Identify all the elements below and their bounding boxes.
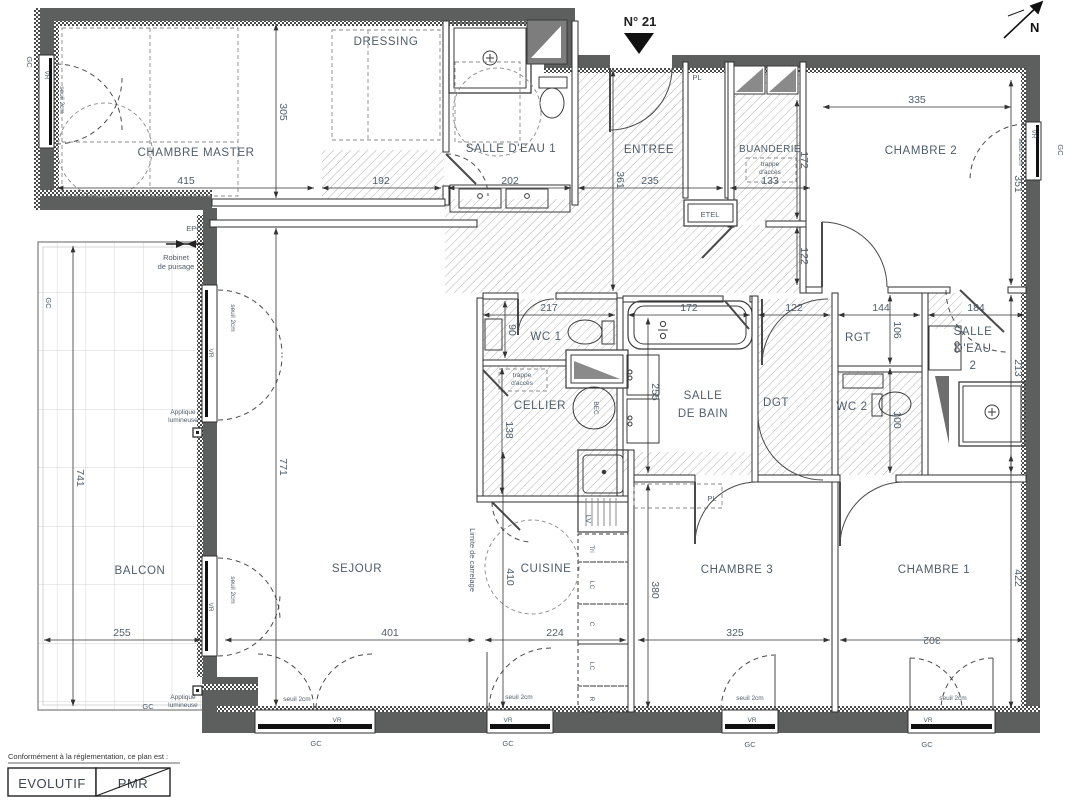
lc-label-2: LC [588,662,595,671]
gc-balcony-left: GC [44,297,53,309]
label-chambre-master: CHAMBRE MASTER [137,147,254,159]
dim-se2-height: 213 [1012,359,1024,377]
r-label: R [588,697,595,702]
dim-chambre3-width: 325 [726,627,744,639]
label-buanderie-note1: trappe [761,161,780,168]
gc-right: GC [1056,144,1065,156]
tri-label: Tri [588,545,595,552]
pl-label-entree: PL [692,73,701,82]
applique2-line1: Applique [170,694,196,701]
dim-sejour-height: 771 [277,458,289,476]
window-chambre1 [908,710,995,733]
hatched-floors [322,68,962,496]
vr-window-chambre1: VR [923,717,932,724]
robinet-line1: Robinet [163,253,190,262]
label-wc-2: WC 2 [836,401,867,413]
legend-evolutif-label: EVOLUTIF [18,776,86,791]
label-rgt: RGT [845,332,871,344]
label-cuisine: CUISINE [521,563,572,575]
floor-plan-drawing: 415 192 202 235 133 335 217 172 122 144 … [0,0,1074,800]
label-balcon: BALCON [115,565,166,577]
dim-entree-width: 235 [641,175,659,187]
applique2-line2: lumineuse [168,702,198,709]
dim-rgt-height: 106 [891,321,903,339]
label-salle-eau-1: SALLE D'EAU 1 [466,143,557,155]
label-chambre-2: CHAMBRE 2 [885,145,958,157]
dim-se2-width: 184 [967,302,985,314]
seuil-cuisine: seuil 2cm [505,694,532,701]
label-wc-1: WC 1 [530,331,561,343]
dim-master-width: 415 [177,175,195,187]
label-se2-2: D'EAU [954,343,991,355]
dim-cuisine-width: 224 [546,627,564,639]
label-dressing: DRESSING [354,36,419,48]
vr-master-window: VR [43,70,50,79]
window-master [39,55,54,148]
seuil-chambre2: seuil 2cm [1017,138,1024,165]
bec-label: BEC [592,401,599,415]
vr-window-chambre3: VR [747,717,756,724]
unit-number-label: N° 21 [624,14,657,29]
vr-balcony-door2: VR [207,602,214,611]
gc-balcony-bottom: GC [142,702,154,711]
seuil-balcony1: seuil 2cm [229,304,236,331]
label-cellier-note1: trappe [513,372,532,379]
vr-window-sejour: VR [332,717,341,724]
unit-arrow-icon [624,33,654,54]
gc-window-chambre1: GC [921,740,933,749]
dim-bath-width: 172 [680,302,698,314]
label-se2-1: SALLE [954,326,993,338]
dim-sdb-height: 255 [649,383,661,401]
gc-window-chambre3: GC [744,740,756,749]
limite-carrelage-label: Limite de carrelage [468,528,477,592]
gc-window-cuisine: GC [502,739,514,748]
applique1-line1: Applique [170,409,196,416]
dim-chambre3-height: 380 [649,581,661,599]
label-cellier-note2: d'accès [511,380,534,387]
legend: Conformément à la réglementation, ce pla… [8,752,180,796]
label-sdb-2: DE BAIN [678,408,728,420]
wall-light-icon-1 [193,428,202,437]
window-sejour [255,710,375,733]
seuil-chambre1: seuil 2cm [939,695,966,702]
dim-master-height: 305 [277,103,289,121]
vr-chambre2-window: VR [1030,129,1037,138]
kitchen-appliance-slots [578,534,628,712]
pl-label-chambre3: PL [707,494,716,503]
unit-marker: N° 21 [624,14,657,54]
label-buanderie: BUANDERIE [739,144,801,155]
toilet-1 [539,77,567,118]
label-cellier: CELLIER [514,400,566,412]
shower-2 [959,382,1025,446]
dim-dressing-width: 192 [372,175,390,187]
dim-balcon-height: 741 [74,469,86,487]
label-sejour: SEJOUR [332,563,382,575]
dim-chambre1-height: 422 [1012,569,1024,587]
lc-label-1: LC [588,581,595,590]
label-buanderie-note2: d'accès [759,169,782,176]
seuil-balcony2: seuil 2cm [229,576,236,603]
label-chambre-3: CHAMBRE 3 [701,564,774,576]
gc-top-left: GC [25,56,34,68]
vr-window-cuisine: VR [503,717,512,724]
label-sdb-1: SALLE [684,390,723,402]
lv-label: LV [584,515,593,524]
dim-wc1-height: 90 [506,324,518,336]
dim-buanderie-width: 133 [761,175,779,187]
dim-cellier-height: 138 [503,421,515,439]
dim-balcon-width: 255 [113,627,131,639]
dim-dgt-width: 122 [785,302,803,314]
dim-sejour-width: 401 [381,627,399,639]
north-arrow-icon: N [1004,2,1042,38]
dim-sdb1-width: 202 [501,175,519,187]
dim-chambre2-width: 335 [908,94,926,106]
seuil-chambre3: seuil 2cm [736,695,763,702]
label-chambre-1: CHAMBRE 1 [898,564,971,576]
robinet-line2: de puisage [158,262,195,271]
dim-cuisine-height: 410 [504,568,516,586]
shower-1 [449,23,531,93]
floor-plan-page: 415 192 202 235 133 335 217 172 122 144 … [0,0,1074,800]
radiator [566,350,628,388]
dim-chambre2-height: 351 [1012,175,1024,193]
seuil-master: seuil 2cm [58,86,65,113]
dim-wc2-height: 100 [891,411,903,429]
epc-label: EPC [186,224,202,233]
dim-chambre1-width: 302 [923,634,941,646]
legend-caption: Conformément à la réglementation, ce pla… [8,752,168,761]
wall-light-icon-2 [193,686,202,695]
c-label: C [588,622,595,627]
vr-balcony-door1: VR [207,348,214,357]
dim-couloir-height: 122 [798,247,810,265]
etel-label: ETEL [701,210,720,219]
north-letter: N [1030,20,1039,35]
seuil-sejour: seuil 2cm [283,696,310,703]
label-entree: ENTREE [624,144,674,156]
window-cuisine [487,710,553,733]
sliding-door-se2 [935,376,949,444]
gc-window-sejour: GC [310,739,322,748]
label-dgt: DGT [763,397,789,409]
label-se2-3: 2 [970,360,977,372]
applique1-line2: lumineuse [168,417,198,424]
dim-entree-height: 361 [614,171,626,189]
dim-wc1-width: 217 [540,302,558,314]
cabinet-sdb1 [527,20,567,64]
dim-rgt-width: 144 [872,302,890,314]
